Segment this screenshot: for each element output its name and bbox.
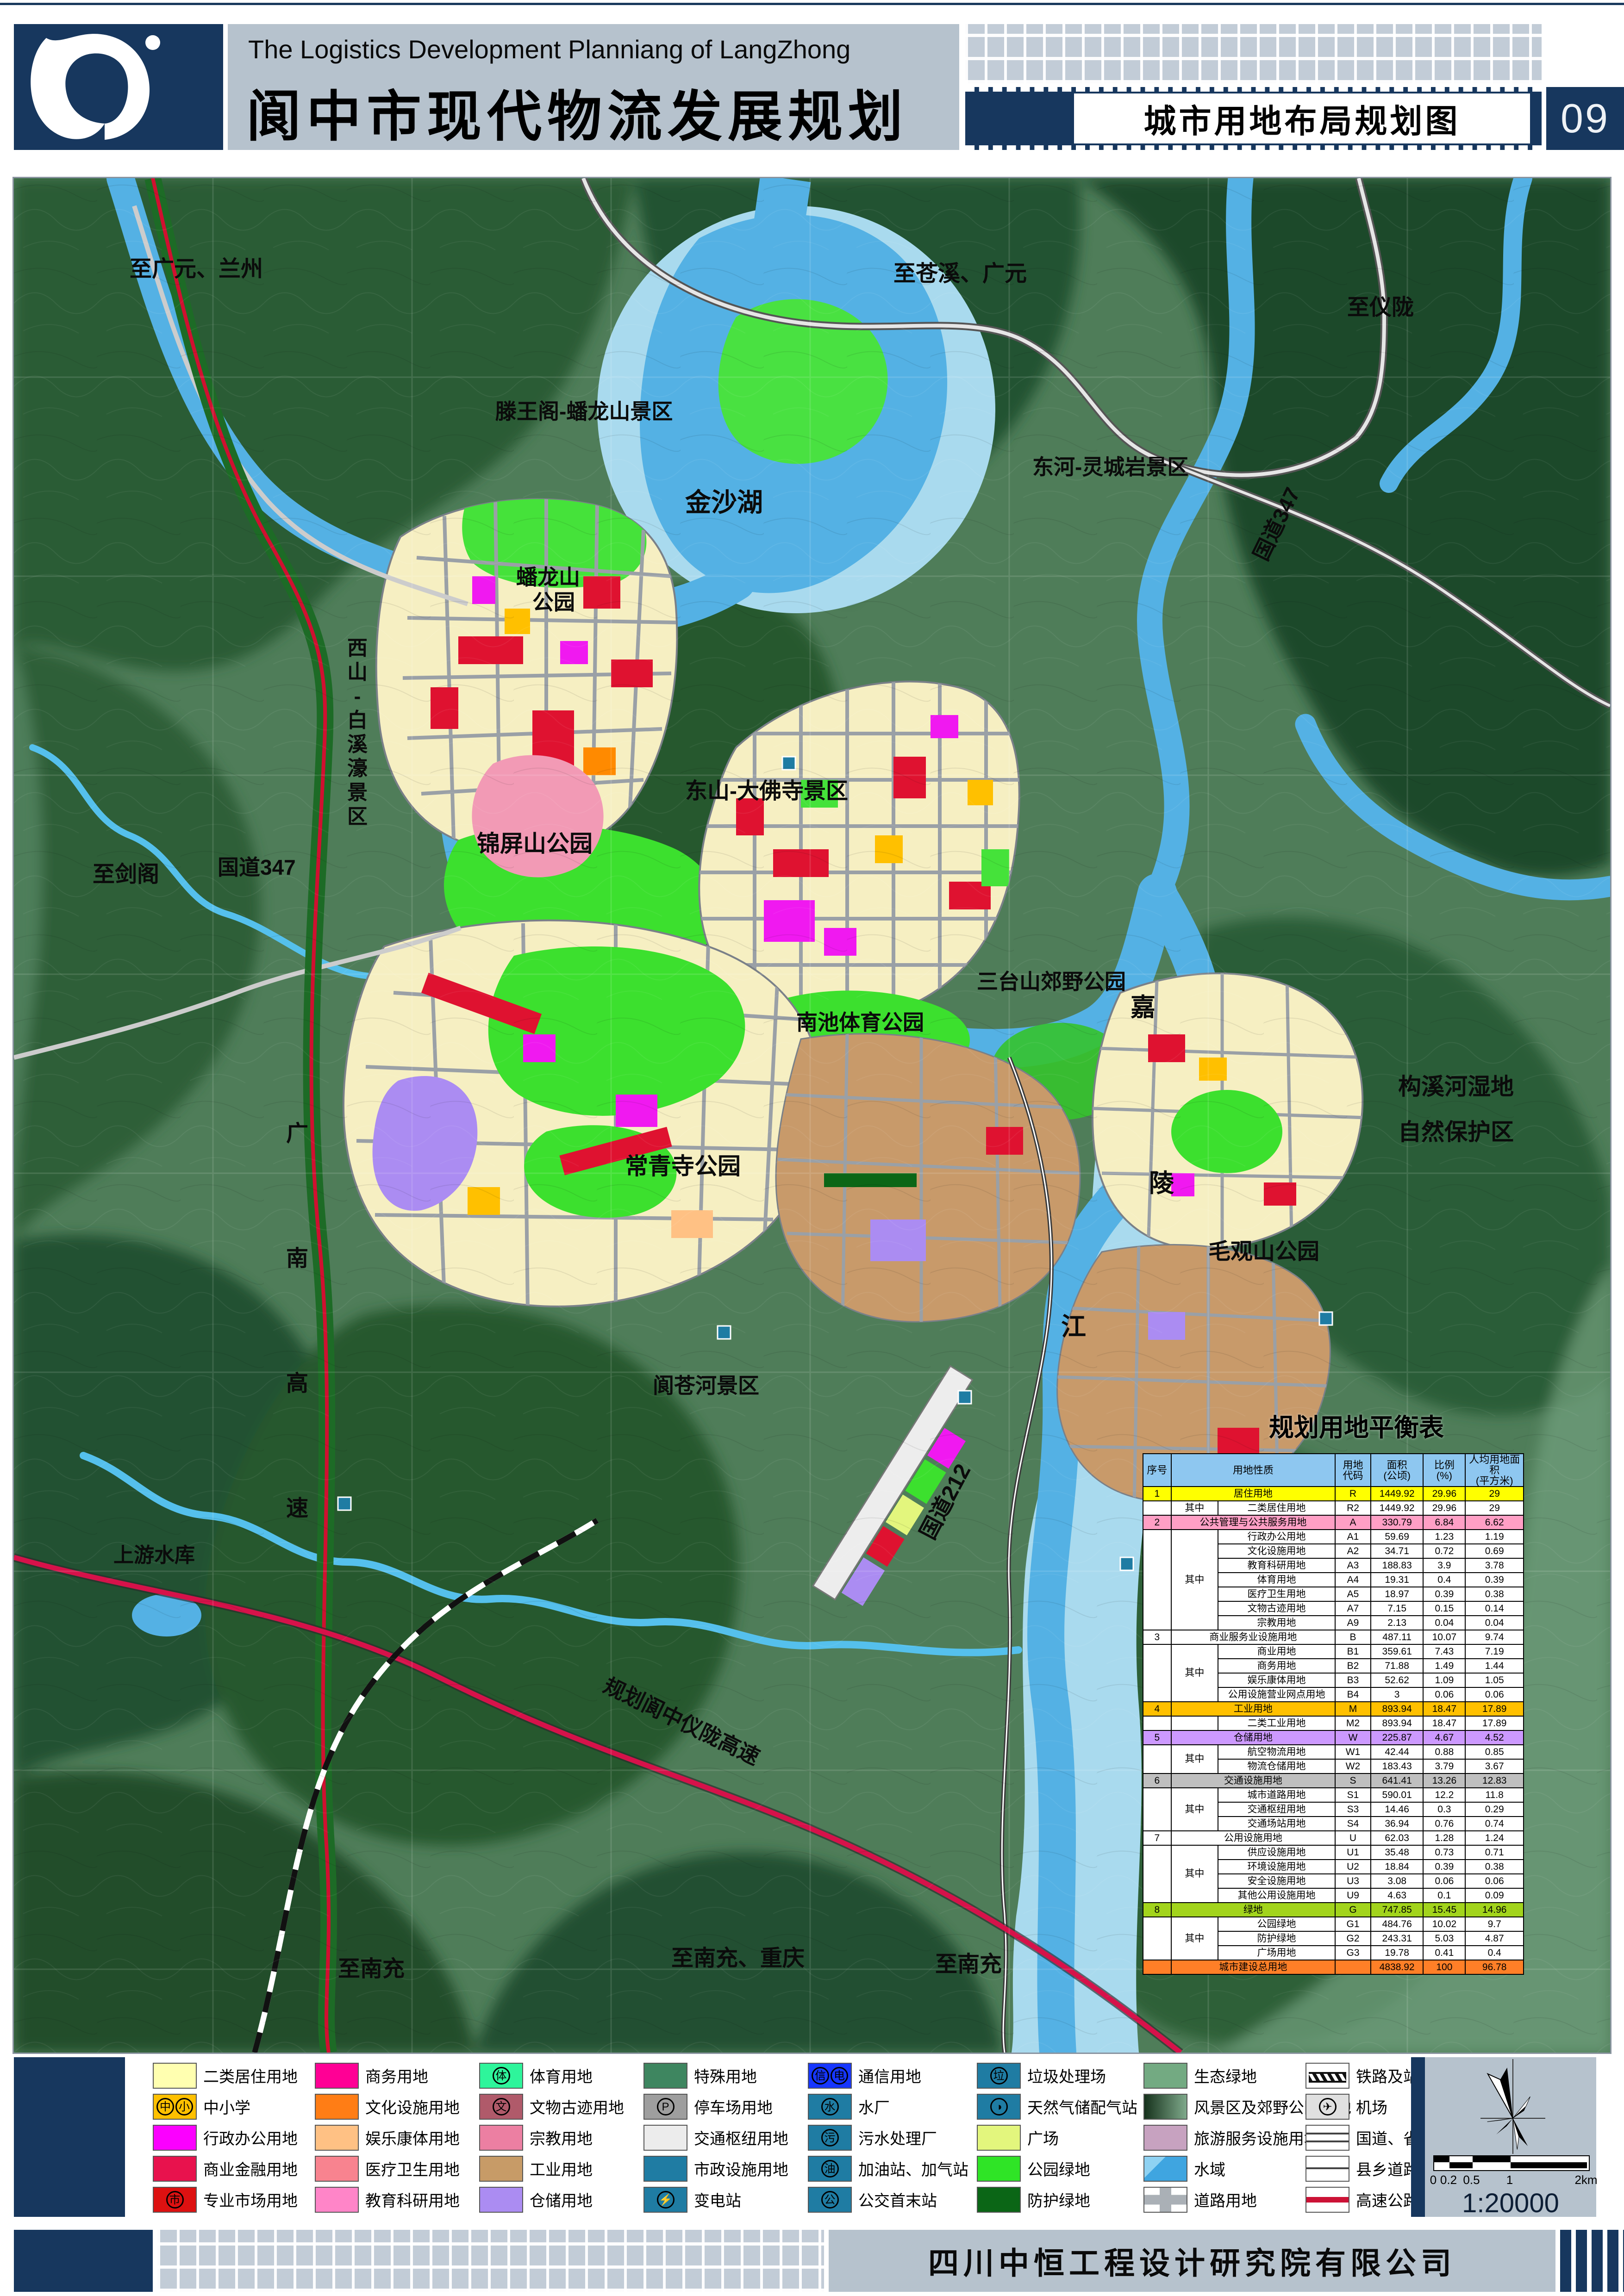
legend-column: 体体育用地文文物古迹用地宗教用地工业用地仓储用地: [479, 2060, 624, 2215]
legend-swatch-icon: 污: [808, 2125, 852, 2151]
legend-label: 体育用地: [530, 2064, 593, 2087]
table-cell: 0.71: [1465, 1845, 1524, 1860]
table-cell: 0.06: [1423, 1874, 1465, 1888]
scale-segment: [1434, 2162, 1449, 2168]
table-cell: [1143, 1917, 1171, 1960]
table-cell: 交通场站用地: [1218, 1817, 1335, 1831]
legend-item: 商业金融用地: [153, 2153, 298, 2184]
legend-label: 商业金融用地: [203, 2157, 298, 2180]
footer-band: 四川中恒工程设计研究院有限公司: [0, 2230, 1624, 2292]
table-cell: S1: [1335, 1788, 1371, 1802]
table-cell: [1143, 1530, 1171, 1630]
table-cell: 2: [1143, 1515, 1171, 1530]
table-cell: 59.69: [1371, 1530, 1423, 1544]
legend-swatch-icon: [643, 2125, 687, 2151]
legend-swatch-icon: 垃: [977, 2063, 1021, 2089]
legend-item: ◑天然气储配气站: [977, 2091, 1137, 2122]
table-cell: 8: [1143, 1903, 1171, 1917]
land-balance-table: 序号用地性质用地代码面积(公顷)比例(%)人均用地面积(平方米) 1居住用地R1…: [1143, 1453, 1524, 1975]
table-header-cell: 人均用地面积(平方米): [1465, 1454, 1524, 1487]
legend-label: 水域: [1194, 2157, 1225, 2180]
scale-tick-label: 0.2: [1440, 2173, 1457, 2187]
legend-label: 行政办公用地: [203, 2126, 298, 2149]
table-cell: 7: [1143, 1831, 1171, 1845]
legend-column: 商务用地文化设施用地娱乐康体用地医疗卫生用地教育科研用地: [315, 2060, 460, 2215]
legend-label: 变电站: [694, 2188, 741, 2211]
table-cell: 19.31: [1371, 1573, 1423, 1587]
table-cell: 二类工业用地: [1218, 1716, 1335, 1730]
legend-swatch-icon: [1143, 2187, 1187, 2213]
map-label: 至南充: [935, 1952, 1002, 1977]
legend-swatch-icon: 市: [153, 2187, 197, 2213]
map-label: 锦屏山公园: [477, 831, 593, 857]
table-cell: 物流仓储用地: [1218, 1759, 1335, 1773]
table-cell: 仓储用地: [1171, 1730, 1335, 1745]
legend-item: 市专业市场用地: [153, 2184, 298, 2215]
table-cell: G: [1335, 1903, 1371, 1917]
table-cell: 城市建设总用地: [1171, 1960, 1335, 1974]
map-label: 至剑阁: [93, 862, 159, 887]
table-cell: 225.87: [1371, 1730, 1423, 1745]
table-header-cell: 比例(%): [1423, 1454, 1465, 1487]
table-cell: S: [1335, 1773, 1371, 1788]
table-cell: A7: [1335, 1601, 1371, 1616]
legend-glyph-icon: 中: [156, 2098, 174, 2116]
scale-tick-label: 2km: [1574, 2173, 1597, 2187]
legend-swatch-icon: [479, 2156, 523, 2182]
table-cell: 9.74: [1465, 1630, 1524, 1644]
map-label: 毛观山公园: [1208, 1239, 1319, 1264]
table-cell: 教育科研用地: [1218, 1558, 1335, 1573]
legend-swatch-icon: [1143, 2063, 1187, 2089]
legend-label: 专业市场用地: [203, 2188, 298, 2211]
legend-label: 天然气储配气站: [1027, 2095, 1137, 2118]
legend-label: 工业用地: [530, 2157, 593, 2180]
legend-item: 娱乐康体用地: [315, 2122, 460, 2153]
table-cell: 娱乐康体用地: [1218, 1673, 1335, 1687]
legend-item: 市政设施用地: [643, 2153, 788, 2184]
table-cell: 893.94: [1371, 1702, 1423, 1716]
legend-glyph-icon: 公: [821, 2191, 839, 2209]
table-cell: 3.9: [1423, 1558, 1465, 1573]
legend-label: 加油站、加气站: [858, 2157, 968, 2180]
table-cell: 0.39: [1465, 1573, 1524, 1587]
table-cell: 0.14: [1465, 1601, 1524, 1616]
scale-segment: [1434, 2156, 1449, 2162]
table-cell: 641.41: [1371, 1773, 1423, 1788]
table-cell: U9: [1335, 1888, 1371, 1903]
table-cell: A3: [1335, 1558, 1371, 1573]
legend-label: 通信用地: [858, 2064, 921, 2087]
map-label: 构溪河湿地: [1398, 1074, 1514, 1100]
scale-segment: [1511, 2156, 1587, 2162]
table-cell: 0.06: [1423, 1687, 1465, 1702]
table-cell: B4: [1335, 1687, 1371, 1702]
legend-item: 宗教用地: [479, 2122, 624, 2153]
table-header-cell: 面积(公顷): [1371, 1454, 1423, 1487]
table-cell: 590.01: [1371, 1788, 1423, 1802]
table-cell: 1.44: [1465, 1659, 1524, 1673]
table-cell: 4.63: [1371, 1888, 1423, 1903]
legend-item: 垃垃圾处理场: [977, 2060, 1137, 2091]
table-cell: 747.85: [1371, 1903, 1423, 1917]
table-cell: [1143, 1644, 1171, 1702]
table-cell: U: [1335, 1831, 1371, 1845]
map-label: 至苍溪、广元: [893, 261, 1027, 286]
map-label: 南池体育公园: [796, 1010, 924, 1034]
legend-column: 信电通信用地水水厂污污水处理厂油加油站、加气站公公交首末站: [808, 2060, 968, 2215]
table-cell: 29: [1465, 1487, 1524, 1501]
table-cell: 96.78: [1465, 1960, 1524, 1974]
legend-swatch-icon: 中小: [153, 2094, 197, 2120]
map-label: 东河-灵城岩景区: [1032, 455, 1188, 479]
company-box: 四川中恒工程设计研究院有限公司: [829, 2230, 1555, 2292]
table-cell: 10.02: [1423, 1917, 1465, 1931]
legend-label: 二类居住用地: [203, 2064, 298, 2087]
table-cell: 243.31: [1371, 1931, 1423, 1946]
title-english: The Logistics Development Planniang of L…: [248, 34, 850, 64]
table-cell: R: [1335, 1487, 1371, 1501]
map-name: 城市用地布局规划图: [1144, 95, 1461, 142]
table-cell: 15.45: [1423, 1903, 1465, 1917]
table-cell: 供应设施用地: [1218, 1845, 1335, 1860]
table-cell: 环境设施用地: [1218, 1860, 1335, 1874]
table-cell: 医疗卫生用地: [1218, 1587, 1335, 1601]
legend-swatch-icon: [1305, 2125, 1349, 2151]
table-cell: 0.39: [1423, 1587, 1465, 1601]
table-cell: 11.8: [1465, 1788, 1524, 1802]
legend-item: 行政办公用地: [153, 2122, 298, 2153]
legend-swatch-icon: 体: [479, 2063, 523, 2089]
legend-label: 道路用地: [1194, 2188, 1257, 2211]
table-cell: 5.03: [1423, 1931, 1465, 1946]
map-info-panel: 1:20000 00.20.512km: [1425, 2057, 1596, 2217]
table-cell: 0.69: [1465, 1544, 1524, 1558]
legend-item: 油加油站、加气站: [808, 2153, 968, 2184]
table-cell: 487.11: [1371, 1630, 1423, 1644]
table-cell: 4.67: [1423, 1730, 1465, 1745]
legend-glyph-icon: P: [657, 2098, 675, 2116]
table-cell: 1.19: [1465, 1530, 1524, 1544]
table-cell: 其中: [1171, 1530, 1218, 1630]
table-cell: 其中: [1171, 1745, 1218, 1773]
header-hatch-pattern: [965, 24, 1542, 83]
table-cell: 12.2: [1423, 1788, 1465, 1802]
legend-swatch-icon: [315, 2063, 359, 2089]
table-cell: 公园绿地: [1218, 1917, 1335, 1931]
map-label: 常青寺公园: [625, 1153, 741, 1179]
table-cell: A2: [1335, 1544, 1371, 1558]
table-cell: W: [1335, 1730, 1371, 1745]
map-label: 至南充: [338, 1957, 405, 1981]
table-cell: 4838.92: [1371, 1960, 1423, 1974]
table-header-cell: 用地性质: [1171, 1454, 1335, 1487]
table-cell: 14.46: [1371, 1802, 1423, 1817]
legend-label: 污水处理厂: [858, 2126, 937, 2149]
table-cell: 公用设施用地: [1171, 1831, 1335, 1845]
legend-label: 交通枢纽用地: [694, 2126, 788, 2149]
table-cell: 5: [1143, 1730, 1171, 1745]
legend-label: 中小学: [203, 2095, 250, 2118]
table-cell: G2: [1335, 1931, 1371, 1946]
table-cell: A1: [1335, 1530, 1371, 1544]
legend-glyph-icon: 油: [821, 2160, 839, 2178]
map-label: 国道347: [218, 855, 296, 879]
legend-label: 文化设施用地: [365, 2095, 460, 2118]
table-cell: 0.04: [1423, 1616, 1465, 1630]
table-cell: 0.72: [1423, 1544, 1465, 1558]
table-cell: A9: [1335, 1616, 1371, 1630]
table-cell: [1143, 1501, 1171, 1515]
table-header-cell: 序号: [1143, 1454, 1171, 1487]
table-cell: 17.89: [1465, 1702, 1524, 1716]
table-cell: 484.76: [1371, 1917, 1423, 1931]
company-logo: [14, 24, 223, 150]
table-header-cell: 用地代码: [1335, 1454, 1371, 1487]
logo-mark-icon: [14, 24, 223, 150]
table-cell: 1.05: [1465, 1673, 1524, 1687]
legend-item: 信电通信用地: [808, 2060, 968, 2091]
table-cell: 0.09: [1465, 1888, 1524, 1903]
company-name: 四川中恒工程设计研究院有限公司: [928, 2239, 1456, 2283]
table-cell: 13.26: [1423, 1773, 1465, 1788]
table-cell: 6.62: [1465, 1515, 1524, 1530]
legend-swatch-icon: [153, 2156, 197, 2182]
legend-column: 特殊用地P停车场用地交通枢纽用地市政设施用地⚡变电站: [643, 2060, 788, 2215]
scale-bar: [1433, 2155, 1590, 2171]
table-cell: 0.3: [1423, 1802, 1465, 1817]
legend-swatch-icon: [315, 2125, 359, 2151]
table-cell: U3: [1335, 1874, 1371, 1888]
legend-swatch-icon: P: [643, 2094, 687, 2120]
legend-swatch-icon: [479, 2187, 523, 2213]
table-cell: 29.96: [1423, 1501, 1465, 1515]
table-cell: 居住用地: [1171, 1487, 1335, 1501]
table-cell: 18.47: [1423, 1702, 1465, 1716]
table-cell: 1449.92: [1371, 1487, 1423, 1501]
legend-swatch-icon: [1143, 2156, 1187, 2182]
footer-hatch-pattern: [157, 2230, 824, 2292]
table-cell: 0.74: [1465, 1817, 1524, 1831]
table-cell: 1: [1143, 1487, 1171, 1501]
map-label: 嘉: [1131, 994, 1156, 1021]
legend-swatch-icon: [1305, 2063, 1349, 2089]
table-cell: 航空物流用地: [1218, 1745, 1335, 1759]
north-compass-icon: [1467, 2059, 1559, 2154]
table-cell: 0.04: [1465, 1616, 1524, 1630]
scale-tick-label: 0: [1430, 2173, 1437, 2187]
table-cell: R2: [1335, 1501, 1371, 1515]
legend-item: 工业用地: [479, 2153, 624, 2184]
table-cell: S4: [1335, 1817, 1371, 1831]
legend-glyph-icon: ◑: [990, 2098, 1008, 2116]
legend-item: 文化设施用地: [315, 2091, 460, 2122]
table-cell: B: [1335, 1630, 1371, 1644]
legend-label: 文物古迹用地: [530, 2095, 624, 2118]
legend-label: 防护绿地: [1027, 2188, 1090, 2211]
table-cell: 62.03: [1371, 1831, 1423, 1845]
table-cell: U2: [1335, 1860, 1371, 1874]
legend-swatch-icon: [1143, 2094, 1187, 2120]
map-label: 东山-大佛寺景区: [685, 779, 848, 803]
table-cell: 10.07: [1423, 1630, 1465, 1644]
legend-glyph-icon: 体: [493, 2067, 510, 2084]
legend-swatch-icon: 公: [808, 2187, 852, 2213]
map-label: 至南充、重庆: [671, 1946, 805, 1971]
table-cell: 其他公用设施用地: [1218, 1888, 1335, 1903]
table-cell: 0.38: [1465, 1587, 1524, 1601]
table-cell: 其中: [1171, 1644, 1218, 1702]
legend-glyph-icon: ✈: [1319, 2098, 1337, 2116]
legend-item: 交通枢纽用地: [643, 2122, 788, 2153]
legend-glyph-icon: 污: [821, 2129, 839, 2147]
legend-item: 二类居住用地: [153, 2060, 298, 2091]
poster-page: The Logistics Development Planniang of L…: [0, 0, 1624, 2296]
table-cell: B3: [1335, 1673, 1371, 1687]
map-label: 阆苍河景区: [653, 1374, 759, 1398]
legend-strip: 二类居住用地中小中小学行政办公用地商业金融用地市专业市场用地商务用地文化设施用地…: [14, 2057, 1610, 2217]
footer-stripes: [1560, 2230, 1624, 2292]
legend-label: 教育科研用地: [365, 2188, 460, 2211]
table-cell: 2.13: [1371, 1616, 1423, 1630]
table-cell: M2: [1335, 1716, 1371, 1730]
table-cell: 3.79: [1423, 1759, 1465, 1773]
legend-label: 水厂: [858, 2095, 890, 2118]
page-number: 09: [1561, 95, 1610, 142]
map-label: 上游水库: [113, 1544, 195, 1567]
legend-item: 特殊用地: [643, 2060, 788, 2091]
table-cell: 14.96: [1465, 1903, 1524, 1917]
page-number-box: 09: [1546, 87, 1624, 150]
legend-label: 公交首末站: [858, 2188, 937, 2211]
table-cell: 0.38: [1465, 1860, 1524, 1874]
legend-label: 商务用地: [365, 2064, 428, 2087]
table-cell: 0.4: [1423, 1573, 1465, 1587]
table-cell: 1.23: [1423, 1530, 1465, 1544]
table-cell: 0.1: [1423, 1888, 1465, 1903]
table-cell: 330.79: [1371, 1515, 1423, 1530]
legend-label: 市政设施用地: [694, 2157, 788, 2180]
table-cell: 7.15: [1371, 1601, 1423, 1616]
table-cell: U1: [1335, 1845, 1371, 1860]
table-cell: 6: [1143, 1773, 1171, 1788]
table-cell: A5: [1335, 1587, 1371, 1601]
legend-label: 停车场用地: [694, 2095, 773, 2118]
table-cell: 183.43: [1371, 1759, 1423, 1773]
legend-column: 垃垃圾处理场◑天然气储配气站广场公园绿地防护绿地: [977, 2060, 1137, 2215]
table-cell: 359.61: [1371, 1644, 1423, 1659]
legend-glyph-icon: 电: [831, 2067, 848, 2084]
table-cell: 1.24: [1465, 1831, 1524, 1845]
table-cell: 6.84: [1423, 1515, 1465, 1530]
map-label: 至广元、兰州: [130, 257, 263, 281]
legend-item: 教育科研用地: [315, 2184, 460, 2215]
table-cell: 1.49: [1423, 1659, 1465, 1673]
table-cell: 71.88: [1371, 1659, 1423, 1673]
footer-navy-block: [14, 2230, 153, 2292]
legend-item: 中小中小学: [153, 2091, 298, 2122]
map-label: 至仪陇: [1347, 295, 1414, 320]
map-label: 金沙湖: [685, 488, 763, 517]
legend-label: 机场: [1356, 2095, 1387, 2118]
legend-item: ⚡变电站: [643, 2184, 788, 2215]
legend-label: 生态绿地: [1194, 2064, 1257, 2087]
table-cell: W1: [1335, 1745, 1371, 1759]
scale-tick-label: 1: [1506, 2173, 1513, 2187]
legend-label: 旅游服务设施用地: [1194, 2126, 1320, 2149]
legend-swatch-icon: [1305, 2156, 1349, 2182]
scale-ratio: 1:20000: [1425, 2188, 1596, 2219]
table-cell: 52.62: [1371, 1673, 1423, 1687]
table-cell: G1: [1335, 1917, 1371, 1931]
scale-segment: [1449, 2156, 1473, 2162]
title-chinese: 阆中市现代物流发展规划: [246, 72, 908, 151]
map-label: 陵: [1149, 1170, 1174, 1197]
table-cell: 体育用地: [1218, 1573, 1335, 1587]
map-label: 三台山郊野公园: [977, 970, 1126, 994]
legend-swatch-icon: [315, 2094, 359, 2120]
table-cell: [1143, 1716, 1171, 1730]
legend-item: P停车场用地: [643, 2091, 788, 2122]
legend-left-block: [14, 2057, 125, 2217]
legend-swatch-icon: [1143, 2125, 1187, 2151]
table-cell: 0.06: [1465, 1687, 1524, 1702]
table-cell: 7.43: [1423, 1644, 1465, 1659]
legend-label: 垃圾处理场: [1027, 2064, 1106, 2087]
map-name-box: 城市用地布局规划图: [1074, 93, 1530, 143]
legend-item: 体体育用地: [479, 2060, 624, 2091]
legend-item: 公公交首末站: [808, 2184, 968, 2215]
table-cell: 防护绿地: [1218, 1931, 1335, 1946]
table-cell: 交通枢纽用地: [1218, 1802, 1335, 1817]
legend-item: 防护绿地: [977, 2184, 1137, 2215]
legend-swatch-icon: [977, 2156, 1021, 2182]
table-cell: 绿地: [1171, 1903, 1335, 1917]
legend-label: 县乡道路: [1356, 2157, 1419, 2180]
legend-glyph-icon: 市: [166, 2191, 184, 2209]
legend-column: 二类居住用地中小中小学行政办公用地商业金融用地市专业市场用地: [153, 2060, 298, 2215]
scale-segment: [1473, 2156, 1511, 2162]
legend-swatch-icon: ⚡: [643, 2187, 687, 2213]
table-cell: 12.83: [1465, 1773, 1524, 1788]
table-cell: M: [1335, 1702, 1371, 1716]
table-cell: 18.84: [1371, 1860, 1423, 1874]
table-cell: 42.44: [1371, 1745, 1423, 1759]
legend-swatch-icon: [315, 2187, 359, 2213]
legend-swatch-icon: [643, 2156, 687, 2182]
table-cell: 0.06: [1465, 1874, 1524, 1888]
title-block: The Logistics Development Planniang of L…: [228, 24, 959, 150]
scale-segment: [1511, 2162, 1587, 2168]
legend-item: 仓储用地: [479, 2184, 624, 2215]
table-cell: 0.4: [1465, 1946, 1524, 1960]
table-cell: 3.08: [1371, 1874, 1423, 1888]
table-cell: 7.19: [1465, 1644, 1524, 1659]
legend-glyph-icon: ⚡: [657, 2191, 675, 2209]
table-cell: 0.29: [1465, 1802, 1524, 1817]
table-cell: 文物古迹用地: [1218, 1601, 1335, 1616]
table-cell: 商务用地: [1218, 1659, 1335, 1673]
table-cell: 文化设施用地: [1218, 1544, 1335, 1558]
table-cell: 9.7: [1465, 1917, 1524, 1931]
table-cell: 0.73: [1423, 1845, 1465, 1860]
legend-label: 公园绿地: [1027, 2157, 1090, 2180]
legend-swatch-icon: [153, 2063, 197, 2089]
table-cell: 二类居住用地: [1218, 1501, 1335, 1515]
map-label: 江: [1061, 1313, 1086, 1341]
scale-tick-label: 0.5: [1463, 2173, 1480, 2187]
legend-label: 特殊用地: [694, 2064, 757, 2087]
